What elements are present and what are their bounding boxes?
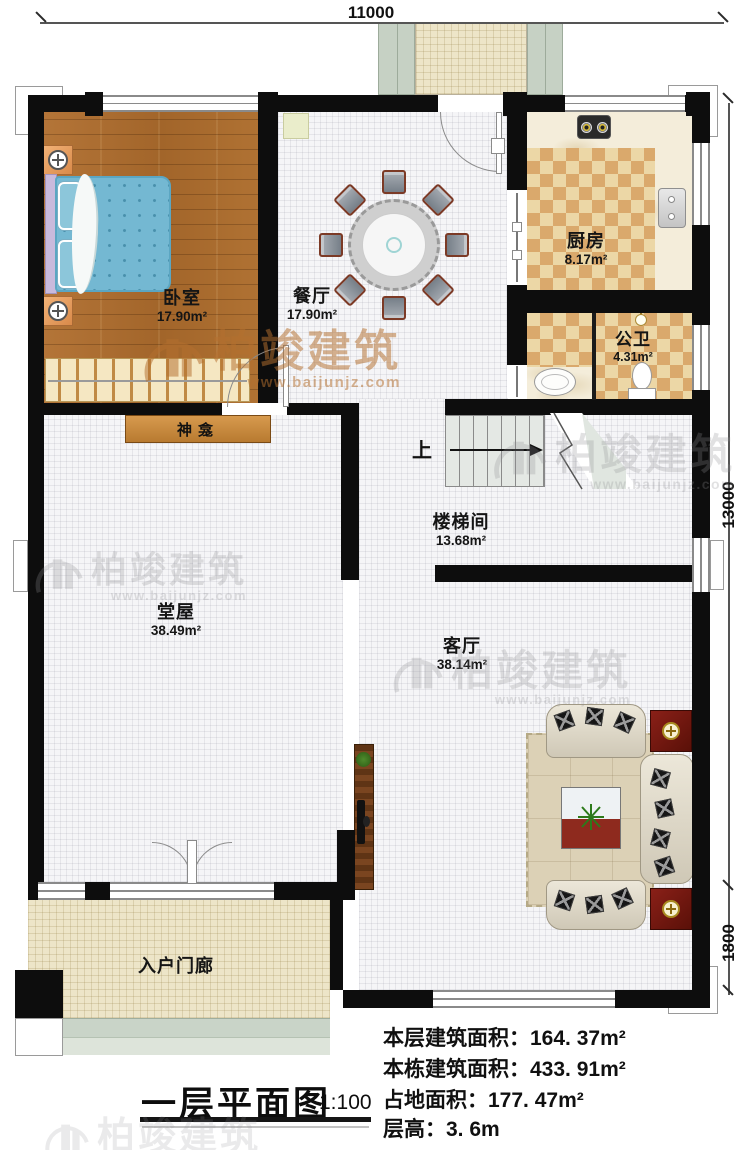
wall-left-lower — [28, 413, 44, 900]
double-door-threshold — [150, 882, 232, 900]
wall — [615, 990, 710, 1008]
cushion — [654, 798, 674, 818]
room-label-living: 客厅 38.14m² — [407, 636, 517, 672]
pendant-lamp-icon — [635, 314, 647, 326]
cushion — [585, 707, 604, 726]
watermark-logo-icon — [42, 1118, 90, 1150]
window-living-right — [692, 538, 710, 592]
stairs-up-label: 上 — [412, 434, 432, 463]
wall — [258, 95, 438, 112]
room-label-hall: 堂屋 38.49m² — [121, 602, 231, 638]
window-kitchen-right — [692, 143, 710, 225]
wall-pier — [85, 882, 110, 900]
window-hall-bottom — [110, 882, 150, 900]
dining-cabinet — [283, 113, 309, 139]
room-label-dining: 餐厅 17.90m² — [257, 286, 367, 322]
dining-chair — [382, 296, 406, 320]
burner-icon — [597, 122, 608, 133]
wardrobe-hangers — [45, 358, 250, 402]
table-lamp-icon — [48, 150, 68, 170]
window-living-bottom — [433, 990, 615, 1008]
wall-right — [692, 225, 710, 325]
floor-plan-canvas: 上 神龛 卧室 17.90m² 餐厅 17.90m² 厨房 8.17 — [0, 0, 750, 1150]
info-building-area: 本栋建筑面积：433. 91m² — [383, 1053, 626, 1083]
dining-chair — [382, 170, 406, 194]
bedroom-door-leaf — [283, 345, 289, 407]
toilet — [628, 362, 656, 400]
stair-direction-arrow-icon — [530, 444, 543, 456]
tv-lens-icon — [363, 816, 370, 827]
wall — [343, 990, 433, 1008]
dimension-side-value: 13000 — [719, 462, 739, 548]
wall-bedroom-hall — [28, 403, 222, 415]
room-label-porch: 入户门廊 — [121, 956, 231, 977]
shrine-label: 神龛 — [177, 419, 219, 440]
wall-left-upper — [28, 95, 44, 413]
kitchen-floor — [527, 148, 655, 290]
room-label-stairwell: 楼梯间 13.68m² — [406, 512, 516, 548]
dimension-tick — [35, 11, 46, 22]
porch-column — [15, 970, 63, 1018]
sink-basin-icon — [668, 196, 675, 203]
window-hall-bottom — [38, 882, 85, 900]
kitchen-door-panel — [512, 250, 522, 260]
room-label-kitchen: 厨房 8.17m² — [531, 231, 641, 267]
entry-door-handle — [491, 138, 505, 154]
dimension-top-value: 11000 — [336, 3, 406, 23]
title-underline — [140, 1117, 371, 1122]
burner-icon — [581, 122, 592, 133]
balcony-floor — [415, 23, 527, 95]
room-label-bathroom: 公卫 4.31m² — [578, 330, 688, 364]
info-footprint-area: 占地面积：177. 47m² — [383, 1084, 584, 1114]
wall-porch-living — [330, 900, 343, 990]
window-hall-bottom — [232, 882, 274, 900]
title-scale: 1:100 — [319, 1091, 372, 1115]
shrine-cabinet: 神龛 — [125, 415, 271, 443]
entry-door-opening — [438, 95, 503, 112]
cushion — [585, 895, 604, 914]
porch-step-1 — [63, 1018, 330, 1037]
dimension-tick — [722, 92, 733, 103]
wall-pier — [85, 92, 103, 116]
gas-stove — [577, 115, 611, 139]
wall-right — [692, 95, 710, 143]
kitchen-door-panel — [512, 222, 522, 232]
bath-sink — [534, 368, 576, 396]
dining-table-center — [386, 237, 402, 253]
wall-bedroom-hall — [287, 403, 341, 415]
dining-chair — [445, 233, 469, 257]
wall-kitchen-bath — [507, 290, 692, 313]
wall-stair-living — [435, 565, 692, 582]
kitchen-sink — [658, 188, 686, 228]
wall — [274, 882, 343, 900]
toilet-bowl-icon — [632, 362, 652, 390]
stair-break-line — [538, 411, 638, 491]
wall-dining-kitchen — [507, 95, 527, 190]
window-bath-right — [692, 325, 710, 390]
kitchen-slide-door — [516, 193, 518, 282]
sink-basin-icon — [668, 213, 675, 220]
plant-icon — [356, 752, 371, 767]
balcony-pillar-left — [378, 23, 415, 95]
info-floor-area: 本层建筑面积：164. 37m² — [383, 1022, 626, 1052]
exterior-sill-porch — [15, 1018, 63, 1056]
wall-right — [692, 592, 710, 1008]
balcony-pillar-right — [527, 23, 563, 95]
wall — [28, 882, 38, 900]
dimension-line-right — [728, 103, 730, 995]
exterior-sill-left — [13, 540, 28, 592]
end-table-lamp-icon — [662, 900, 680, 918]
porch-step-2 — [63, 1037, 330, 1055]
hall-floor — [42, 413, 343, 882]
window-bedroom-top — [103, 95, 258, 112]
window-kitchen-top — [565, 95, 685, 112]
room-label-bedroom: 卧室 17.90m² — [127, 288, 237, 324]
table-lamp-icon — [48, 301, 68, 321]
plant-icon — [576, 802, 606, 832]
bathroom-door — [516, 366, 518, 397]
title-underline-thin — [142, 1126, 369, 1128]
dimension-side-lower-value: 1800 — [719, 903, 739, 983]
wall-hall-stair — [341, 403, 359, 580]
sink-bowl-icon — [541, 374, 569, 390]
end-table-lamp-icon — [662, 722, 680, 740]
double-door-leaves — [187, 840, 197, 884]
info-floor-height: 层高：3. 6m — [383, 1113, 500, 1143]
dining-chair — [319, 233, 343, 257]
dimension-tick — [717, 11, 728, 22]
wall-hall-living — [337, 830, 355, 900]
stair-direction-line — [450, 449, 532, 451]
